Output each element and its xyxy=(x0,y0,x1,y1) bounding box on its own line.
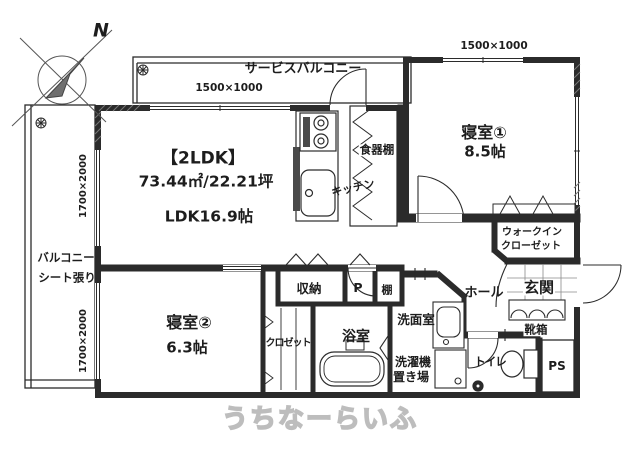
ldk-size-label: LDK16.9帖 xyxy=(165,209,254,225)
north-label: N xyxy=(93,22,109,41)
bedroom2-name: 寝室② xyxy=(166,315,212,331)
floorplan-page: N サービスバルコニー 1500×1000 1500×1000 寝室① 8.5帖… xyxy=(0,0,640,452)
balcony-window-dim-upper: 1700×2000 xyxy=(79,153,89,219)
laundry-label-line2: 置き場 xyxy=(393,371,429,383)
bedroom1-window-dim: 1500×1000 xyxy=(459,41,528,52)
bathtub-icon xyxy=(320,340,384,386)
bedroom1-closet-counter xyxy=(493,196,575,214)
bedroom2-size: 6.3帖 xyxy=(166,341,208,356)
bath-label: 浴室 xyxy=(342,330,370,344)
service-balcony-drain-icon xyxy=(138,65,148,75)
entrance-label: 玄関 xyxy=(523,281,555,296)
storage-label: 収納 xyxy=(296,283,321,296)
hall-label: ホール xyxy=(464,287,503,300)
balcony-label-line2: シート張り xyxy=(38,272,96,284)
cupboard-label: 食器棚 xyxy=(359,144,396,156)
toilet-label: トイレ xyxy=(474,356,506,368)
laundry-label-line1: 洗濯機 xyxy=(395,356,431,368)
pipe-space-label: PS xyxy=(548,360,565,372)
washroom-label: 洗面室 xyxy=(397,314,435,327)
balcony-window-dim-lower: 1700×2000 xyxy=(79,308,89,374)
pipe-small-label: P xyxy=(353,282,362,295)
wic-label-line2: クローゼット xyxy=(501,242,561,252)
service-balcony-window-dim: 1500×1000 xyxy=(194,83,263,94)
vanity-icon xyxy=(433,302,464,348)
left-balcony-drain-icon xyxy=(36,118,46,128)
balcony-label-line1: バルコニー xyxy=(37,252,94,264)
cupboard-icon xyxy=(350,106,397,226)
washing-machine-icon xyxy=(435,350,466,388)
service-balcony-label: サービスバルコニー xyxy=(245,63,362,76)
wic-label-line1: ウォークイン xyxy=(502,228,562,238)
closet-label: クロゼット xyxy=(266,339,311,349)
plan-area-label: 73.44㎡/22.21坪 xyxy=(139,174,274,190)
sink-icon xyxy=(301,170,335,216)
shoebox-icon xyxy=(509,300,565,320)
plan-type-label: 【2LDK】 xyxy=(161,151,245,168)
closet-sliding-doors xyxy=(265,308,296,390)
stove-icon xyxy=(300,113,336,151)
bedroom1-size: 8.5帖 xyxy=(464,145,506,160)
bedroom1-name: 寝室① xyxy=(461,125,507,141)
shoebox-label: 靴箱 xyxy=(524,324,549,336)
shelf-label: 棚 xyxy=(382,285,393,296)
site-watermark: うちなーらいふ xyxy=(222,399,418,436)
